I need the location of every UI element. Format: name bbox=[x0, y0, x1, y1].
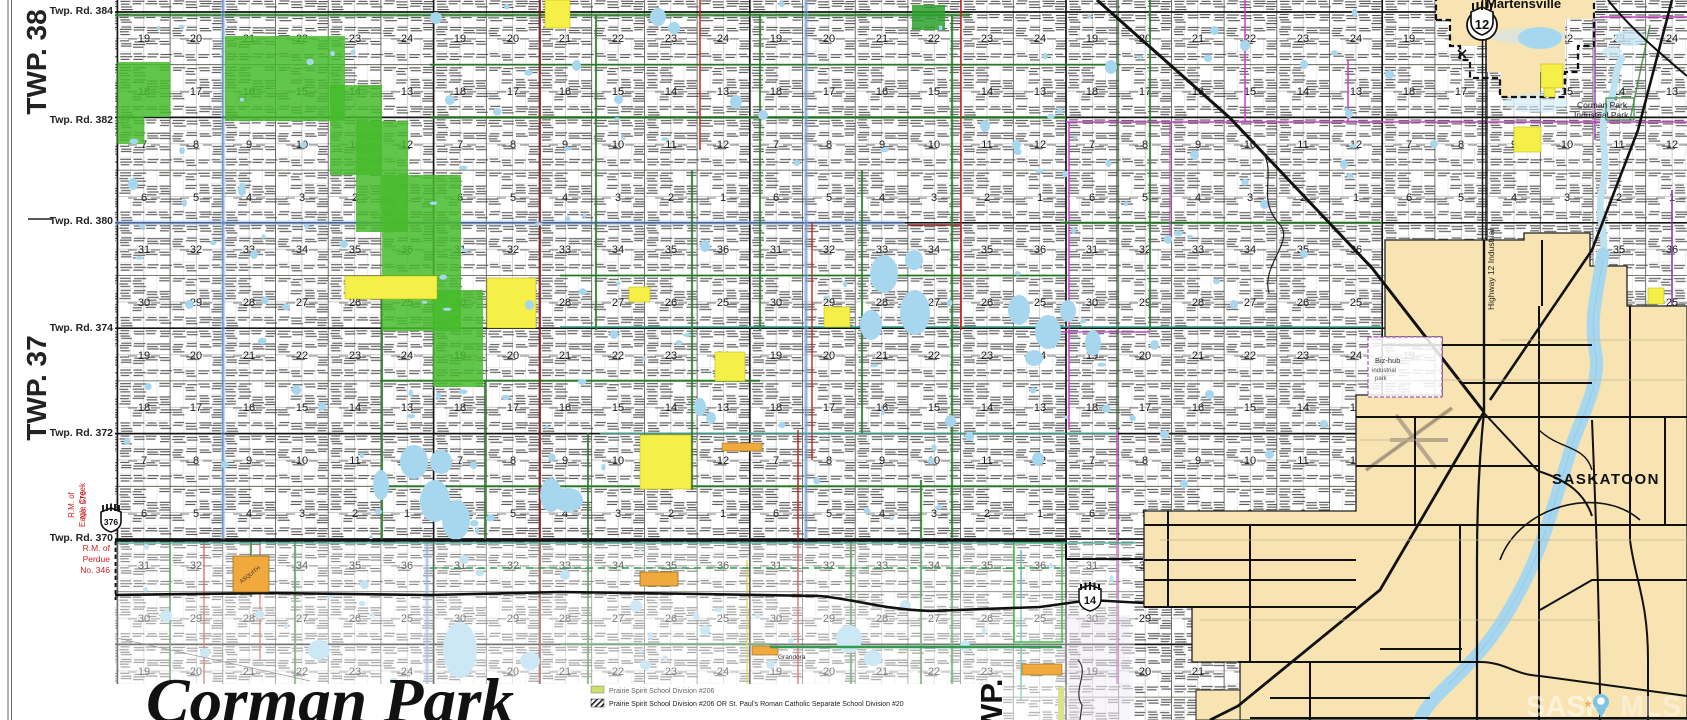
svg-text:17: 17 bbox=[190, 86, 202, 98]
svg-text:28: 28 bbox=[1192, 297, 1204, 309]
svg-text:*: * bbox=[1585, 699, 1592, 716]
svg-text:13: 13 bbox=[1034, 402, 1046, 414]
svg-text:6: 6 bbox=[1089, 192, 1095, 204]
svg-text:28: 28 bbox=[559, 297, 571, 309]
svg-text:1: 1 bbox=[1037, 508, 1043, 520]
svg-text:Corman Park: Corman Park bbox=[146, 665, 514, 720]
svg-text:R.M. of: R.M. of bbox=[83, 543, 111, 553]
svg-text:7: 7 bbox=[1406, 139, 1412, 151]
svg-text:Twp. Rd. 380: Twp. Rd. 380 bbox=[50, 215, 114, 227]
svg-text:35: 35 bbox=[981, 244, 993, 256]
svg-text:26: 26 bbox=[981, 297, 993, 309]
svg-text:2: 2 bbox=[1616, 192, 1622, 204]
svg-text:MLS: MLS bbox=[1620, 691, 1681, 720]
svg-text:11: 11 bbox=[349, 455, 360, 467]
svg-text:11: 11 bbox=[981, 139, 992, 151]
svg-text:11: 11 bbox=[665, 139, 676, 151]
svg-text:24: 24 bbox=[1350, 350, 1362, 362]
svg-text:33: 33 bbox=[559, 244, 571, 256]
svg-text:32: 32 bbox=[823, 244, 835, 256]
svg-text:11: 11 bbox=[1613, 139, 1624, 151]
svg-text:34: 34 bbox=[928, 244, 940, 256]
svg-text:26: 26 bbox=[1297, 297, 1309, 309]
svg-text:9: 9 bbox=[562, 455, 568, 467]
svg-text:26: 26 bbox=[665, 297, 677, 309]
svg-text:9: 9 bbox=[879, 455, 885, 467]
svg-text:24: 24 bbox=[401, 350, 413, 362]
svg-text:9: 9 bbox=[1195, 455, 1201, 467]
svg-text:14: 14 bbox=[1297, 86, 1309, 98]
svg-text:2: 2 bbox=[984, 508, 990, 520]
svg-text:5: 5 bbox=[510, 508, 516, 520]
svg-text:24: 24 bbox=[1350, 33, 1362, 45]
svg-text:13: 13 bbox=[1034, 86, 1046, 98]
svg-text:12: 12 bbox=[717, 139, 729, 151]
svg-text:5: 5 bbox=[826, 508, 832, 520]
svg-text:17: 17 bbox=[823, 86, 835, 98]
svg-text:31: 31 bbox=[770, 244, 782, 256]
svg-text:15: 15 bbox=[296, 402, 308, 414]
svg-text:18: 18 bbox=[770, 402, 782, 414]
svg-text:30: 30 bbox=[138, 297, 150, 309]
svg-text:13: 13 bbox=[401, 86, 413, 98]
svg-text:18: 18 bbox=[1086, 86, 1098, 98]
svg-text:20: 20 bbox=[190, 350, 202, 362]
svg-text:27: 27 bbox=[612, 297, 624, 309]
svg-text:industrial: industrial bbox=[1372, 368, 1396, 374]
svg-text:Martensville: Martensville bbox=[1486, 0, 1561, 11]
svg-text:23: 23 bbox=[981, 33, 993, 45]
svg-text:31: 31 bbox=[138, 244, 150, 256]
svg-text:23: 23 bbox=[665, 33, 677, 45]
svg-text:21: 21 bbox=[1192, 666, 1204, 678]
svg-text:16: 16 bbox=[243, 402, 255, 414]
svg-text:23: 23 bbox=[1297, 33, 1309, 45]
svg-text:20: 20 bbox=[1139, 350, 1151, 362]
svg-text:11: 11 bbox=[981, 455, 992, 467]
svg-text:19: 19 bbox=[1403, 33, 1415, 45]
svg-text:6: 6 bbox=[141, 192, 147, 204]
svg-text:17: 17 bbox=[190, 402, 202, 414]
svg-text:3: 3 bbox=[1247, 192, 1253, 204]
svg-text:14: 14 bbox=[665, 402, 677, 414]
svg-text:18: 18 bbox=[454, 402, 466, 414]
svg-text:8: 8 bbox=[826, 455, 832, 467]
svg-text:8: 8 bbox=[1142, 455, 1148, 467]
svg-text:20: 20 bbox=[1139, 666, 1151, 678]
svg-text:27: 27 bbox=[928, 297, 940, 309]
svg-text:10: 10 bbox=[1244, 455, 1256, 467]
svg-text:1: 1 bbox=[1037, 192, 1043, 204]
svg-text:5: 5 bbox=[510, 192, 516, 204]
svg-text:20: 20 bbox=[507, 33, 519, 45]
svg-text:22: 22 bbox=[612, 350, 624, 362]
svg-text:35: 35 bbox=[349, 244, 361, 256]
svg-text:17: 17 bbox=[507, 402, 519, 414]
svg-text:7: 7 bbox=[1089, 139, 1095, 151]
svg-text:14: 14 bbox=[1084, 595, 1097, 607]
svg-text:19: 19 bbox=[770, 33, 782, 45]
svg-text:1: 1 bbox=[1353, 192, 1359, 204]
svg-text:11: 11 bbox=[1297, 455, 1308, 467]
svg-text:18: 18 bbox=[1086, 402, 1098, 414]
svg-text:21: 21 bbox=[243, 350, 255, 362]
svg-text:34: 34 bbox=[296, 244, 308, 256]
svg-text:5: 5 bbox=[826, 192, 832, 204]
svg-text:6: 6 bbox=[141, 508, 147, 520]
svg-text:13: 13 bbox=[717, 402, 729, 414]
svg-text:2: 2 bbox=[984, 192, 990, 204]
svg-text:5: 5 bbox=[193, 508, 199, 520]
svg-text:1: 1 bbox=[720, 508, 726, 520]
svg-text:5: 5 bbox=[1458, 192, 1464, 204]
svg-text:15: 15 bbox=[612, 402, 624, 414]
svg-text:2: 2 bbox=[668, 508, 674, 520]
svg-text:13: 13 bbox=[401, 402, 413, 414]
svg-text:19: 19 bbox=[138, 350, 150, 362]
svg-text:Prairie Spirit School Division: Prairie Spirit School Division #206 OR S… bbox=[609, 701, 904, 708]
svg-text:14: 14 bbox=[981, 86, 993, 98]
svg-text:28: 28 bbox=[243, 297, 255, 309]
svg-text:18: 18 bbox=[454, 86, 466, 98]
svg-text:TWP. 37: TWP. 37 bbox=[21, 335, 52, 440]
svg-text:Biz-hub: Biz-hub bbox=[1375, 356, 1400, 365]
svg-text:24: 24 bbox=[1666, 33, 1678, 45]
svg-text:park: park bbox=[1375, 376, 1388, 382]
svg-text:16: 16 bbox=[1192, 402, 1204, 414]
svg-text:21: 21 bbox=[1192, 33, 1204, 45]
svg-text:7: 7 bbox=[773, 139, 779, 151]
svg-text:7: 7 bbox=[457, 139, 463, 151]
svg-text:32: 32 bbox=[507, 244, 519, 256]
svg-text:Twp. Rd. 372: Twp. Rd. 372 bbox=[50, 427, 114, 439]
svg-text:29: 29 bbox=[1139, 613, 1151, 625]
svg-text:10: 10 bbox=[928, 139, 940, 151]
svg-text:4: 4 bbox=[246, 508, 252, 520]
svg-text:10: 10 bbox=[612, 139, 624, 151]
svg-text:5: 5 bbox=[193, 192, 199, 204]
svg-text:4: 4 bbox=[1195, 192, 1201, 204]
svg-text:8: 8 bbox=[1142, 139, 1148, 151]
svg-text:24: 24 bbox=[717, 33, 729, 45]
svg-text:7: 7 bbox=[1089, 455, 1095, 467]
svg-text:23: 23 bbox=[349, 33, 361, 45]
svg-text:6: 6 bbox=[773, 508, 779, 520]
svg-text:4: 4 bbox=[246, 192, 252, 204]
svg-text:22: 22 bbox=[1244, 350, 1256, 362]
svg-text:25: 25 bbox=[717, 297, 729, 309]
svg-text:Twp. Rd. 374: Twp. Rd. 374 bbox=[50, 322, 114, 334]
svg-text:23: 23 bbox=[981, 350, 993, 362]
svg-text:13: 13 bbox=[1666, 86, 1678, 98]
svg-text:4: 4 bbox=[879, 508, 885, 520]
svg-text:3: 3 bbox=[615, 508, 621, 520]
svg-text:12: 12 bbox=[1666, 139, 1678, 151]
svg-text:19: 19 bbox=[138, 33, 150, 45]
svg-text:14: 14 bbox=[1297, 402, 1309, 414]
svg-text:6: 6 bbox=[773, 192, 779, 204]
svg-text:22: 22 bbox=[296, 350, 308, 362]
svg-text:27: 27 bbox=[1244, 297, 1256, 309]
svg-text:3: 3 bbox=[615, 192, 621, 204]
svg-text:13: 13 bbox=[717, 86, 729, 98]
svg-text:24: 24 bbox=[1034, 33, 1046, 45]
svg-text:24: 24 bbox=[401, 33, 413, 45]
svg-text:4: 4 bbox=[562, 192, 568, 204]
svg-text:21: 21 bbox=[1192, 350, 1204, 362]
svg-text:14: 14 bbox=[665, 86, 677, 98]
svg-text:31: 31 bbox=[1086, 244, 1098, 256]
svg-text:18: 18 bbox=[1403, 86, 1415, 98]
svg-text:23: 23 bbox=[1297, 350, 1309, 362]
svg-text:18: 18 bbox=[138, 402, 150, 414]
svg-text:9: 9 bbox=[1195, 139, 1201, 151]
svg-text:7: 7 bbox=[141, 455, 147, 467]
svg-text:7: 7 bbox=[457, 455, 463, 467]
svg-text:5: 5 bbox=[1142, 192, 1148, 204]
svg-text:8: 8 bbox=[193, 455, 199, 467]
svg-text:Twp. Rd. 384: Twp. Rd. 384 bbox=[50, 5, 114, 17]
svg-text:8: 8 bbox=[1458, 139, 1464, 151]
svg-text:27: 27 bbox=[296, 297, 308, 309]
svg-text:2: 2 bbox=[352, 508, 358, 520]
svg-text:23: 23 bbox=[665, 350, 677, 362]
svg-text:20: 20 bbox=[190, 33, 202, 45]
svg-text:7: 7 bbox=[773, 455, 779, 467]
svg-text:12: 12 bbox=[1475, 17, 1489, 32]
svg-text:18: 18 bbox=[770, 86, 782, 98]
svg-text:36: 36 bbox=[717, 244, 729, 256]
svg-text:13: 13 bbox=[1350, 86, 1362, 98]
svg-text:12: 12 bbox=[717, 455, 729, 467]
svg-text:Corman Park: Corman Park bbox=[1577, 100, 1628, 110]
svg-text:34: 34 bbox=[1244, 244, 1256, 256]
svg-text:2: 2 bbox=[668, 192, 674, 204]
svg-text:Twp. Rd. 382: Twp. Rd. 382 bbox=[50, 114, 114, 126]
svg-text:30: 30 bbox=[1086, 297, 1098, 309]
svg-text:21: 21 bbox=[876, 33, 888, 45]
svg-text:17: 17 bbox=[1455, 86, 1467, 98]
svg-text:17: 17 bbox=[507, 86, 519, 98]
svg-text:TWP. 38: TWP. 38 bbox=[21, 9, 52, 114]
svg-text:20: 20 bbox=[823, 350, 835, 362]
svg-text:16: 16 bbox=[559, 402, 571, 414]
svg-text:15: 15 bbox=[1244, 402, 1256, 414]
svg-text:1: 1 bbox=[720, 192, 726, 204]
svg-text:16: 16 bbox=[876, 86, 888, 98]
svg-text:8: 8 bbox=[826, 139, 832, 151]
svg-text:10: 10 bbox=[1561, 139, 1573, 151]
svg-text:6: 6 bbox=[1406, 192, 1412, 204]
svg-text:20: 20 bbox=[823, 33, 835, 45]
svg-text:8: 8 bbox=[510, 455, 516, 467]
svg-text:9: 9 bbox=[246, 455, 252, 467]
svg-text:Grandora: Grandora bbox=[778, 654, 806, 661]
svg-text:25: 25 bbox=[1350, 297, 1362, 309]
svg-text:19: 19 bbox=[1086, 33, 1098, 45]
svg-text:SASKATOON: SASKATOON bbox=[1552, 471, 1660, 488]
svg-text:22: 22 bbox=[612, 33, 624, 45]
svg-text:8: 8 bbox=[510, 139, 516, 151]
svg-text:23: 23 bbox=[349, 350, 361, 362]
svg-text:36: 36 bbox=[1034, 244, 1046, 256]
svg-text:34: 34 bbox=[612, 244, 624, 256]
svg-text:Prairie Spirit School Division: Prairie Spirit School Division #206 bbox=[609, 688, 715, 695]
svg-text:21: 21 bbox=[559, 350, 571, 362]
svg-text:32: 32 bbox=[190, 244, 202, 256]
svg-text:21: 21 bbox=[876, 350, 888, 362]
svg-text:12: 12 bbox=[1034, 139, 1046, 151]
svg-text:9: 9 bbox=[246, 139, 252, 151]
svg-text:15: 15 bbox=[928, 402, 940, 414]
svg-text:21: 21 bbox=[559, 33, 571, 45]
svg-text:TWP.: TWP. bbox=[974, 679, 1009, 720]
svg-text:No. 376: No. 376 bbox=[79, 490, 88, 519]
svg-text:22: 22 bbox=[928, 33, 940, 45]
svg-text:11: 11 bbox=[1297, 139, 1308, 151]
svg-text:20: 20 bbox=[507, 350, 519, 362]
svg-text:Industrial Park: Industrial Park bbox=[1574, 110, 1629, 120]
svg-text:No. 346: No. 346 bbox=[80, 565, 110, 575]
svg-text:14: 14 bbox=[349, 402, 361, 414]
svg-text:33: 33 bbox=[876, 244, 888, 256]
svg-text:10: 10 bbox=[296, 455, 308, 467]
svg-text:8: 8 bbox=[193, 139, 199, 151]
svg-text:22: 22 bbox=[928, 350, 940, 362]
svg-text:14: 14 bbox=[981, 402, 993, 414]
svg-text:6: 6 bbox=[1089, 508, 1095, 520]
svg-text:35: 35 bbox=[1613, 244, 1625, 256]
svg-text:3: 3 bbox=[931, 192, 937, 204]
svg-text:35: 35 bbox=[665, 244, 677, 256]
svg-text:17: 17 bbox=[1139, 402, 1151, 414]
svg-text:1: 1 bbox=[404, 508, 410, 520]
svg-text:4: 4 bbox=[1511, 192, 1517, 204]
svg-text:3: 3 bbox=[931, 508, 937, 520]
svg-text:19: 19 bbox=[454, 33, 466, 45]
svg-text:33: 33 bbox=[1192, 244, 1204, 256]
svg-text:19: 19 bbox=[770, 350, 782, 362]
svg-text:10: 10 bbox=[612, 455, 624, 467]
svg-text:376: 376 bbox=[104, 517, 118, 527]
svg-text:3: 3 bbox=[1564, 192, 1570, 204]
svg-text:15: 15 bbox=[928, 86, 940, 98]
svg-text:16: 16 bbox=[559, 86, 571, 98]
svg-text:Perdue: Perdue bbox=[83, 554, 111, 564]
svg-text:28: 28 bbox=[876, 297, 888, 309]
svg-text:30: 30 bbox=[770, 297, 782, 309]
svg-text:25: 25 bbox=[1034, 297, 1046, 309]
svg-text:17: 17 bbox=[823, 402, 835, 414]
svg-text:3: 3 bbox=[299, 192, 305, 204]
svg-text:Highway 12 Industrial: Highway 12 Industrial bbox=[1486, 229, 1496, 310]
svg-text:4: 4 bbox=[879, 192, 885, 204]
svg-text:3: 3 bbox=[299, 508, 305, 520]
svg-text:R.M. of: R.M. of bbox=[67, 491, 76, 518]
